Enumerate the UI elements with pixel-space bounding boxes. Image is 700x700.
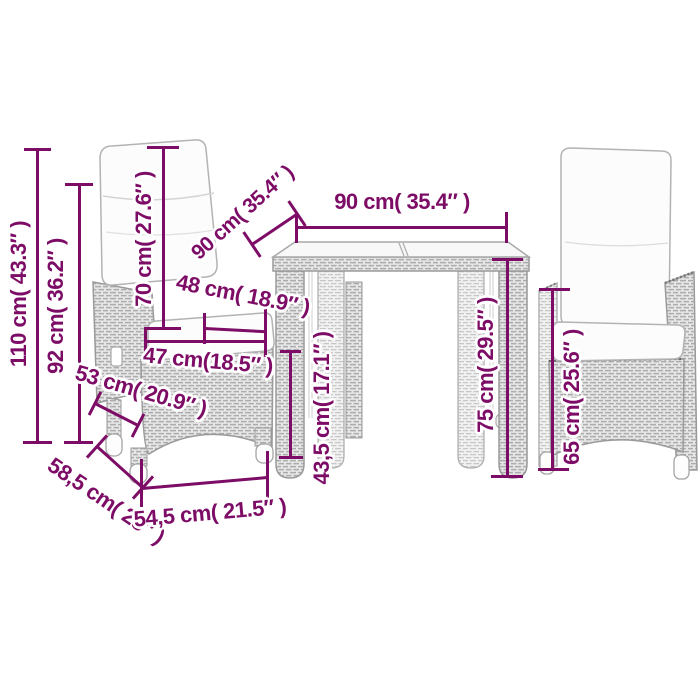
dim-tick xyxy=(64,441,93,444)
back-cushion xyxy=(561,148,671,328)
dim-tick xyxy=(23,441,52,444)
dim-tick xyxy=(147,146,179,149)
dim-tick xyxy=(24,148,51,151)
dim-line xyxy=(297,226,508,229)
dim-line xyxy=(78,185,81,443)
dim-tick xyxy=(65,183,93,186)
dim-label: 43,5 cm( 17.1″ ) xyxy=(309,332,335,485)
table-leg-right xyxy=(499,271,527,478)
back-cushion xyxy=(100,140,217,285)
dim-line xyxy=(146,340,265,343)
table-rim xyxy=(273,257,529,271)
dim-line xyxy=(289,352,292,459)
dim-tick xyxy=(280,350,301,353)
dim-tick xyxy=(492,258,523,261)
dim-label: 110 cm( 43.3″ ) xyxy=(6,221,32,367)
dim-line xyxy=(36,150,39,443)
dim-label: 90 cm( 35.4″ ) xyxy=(334,189,470,215)
dim-label: 65 cm( 25.6″ ) xyxy=(559,329,585,465)
dim-line xyxy=(551,290,554,471)
dim-tick xyxy=(266,451,269,499)
dim-label: 92 cm( 36.2″ ) xyxy=(43,238,69,374)
dim-tick xyxy=(539,288,570,291)
dim-line xyxy=(162,148,165,329)
furniture-illustration xyxy=(0,0,700,700)
dim-tick xyxy=(538,468,569,471)
dim-tick xyxy=(491,475,523,478)
dim-tick xyxy=(144,327,181,330)
dim-tick xyxy=(505,212,508,243)
product-dimension-diagram: 110 cm( 43.3″ ) 92 cm( 36.2″ ) 70 cm( 27… xyxy=(0,0,700,700)
armrest-post xyxy=(346,282,362,438)
dim-tick xyxy=(279,456,303,459)
dim-label: 75 cm( 29.5″ ) xyxy=(473,297,499,433)
dim-label: 70 cm( 27.6″ ) xyxy=(131,171,157,307)
dim-tick xyxy=(140,459,143,507)
dim-line xyxy=(506,260,509,477)
